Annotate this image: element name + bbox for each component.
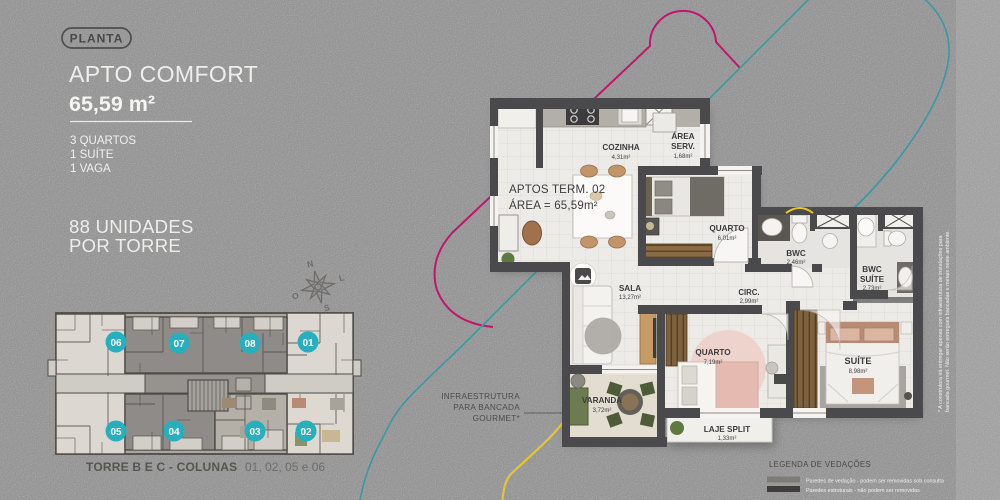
svg-text:bancada gourmet. Não serão ent: bancada gourmet. Não serão entregues ban… [945, 230, 951, 412]
svg-text:TORRE B E C - COLUNAS: TORRE B E C - COLUNAS [86, 460, 237, 474]
svg-text:BWC: BWC [862, 265, 882, 274]
svg-text:PLANTA: PLANTA [70, 32, 124, 46]
svg-text:13,27m²: 13,27m² [619, 295, 641, 301]
svg-text:Paredes de vedação - podem ser: Paredes de vedação - podem ser removidas… [806, 479, 944, 485]
svg-text:* A construtora irá entregar a: * A construtora irá entregar apenas com … [938, 236, 944, 413]
svg-text:6,01m²: 6,01m² [718, 236, 737, 242]
svg-text:03: 03 [249, 427, 261, 438]
svg-text:06: 06 [110, 338, 122, 349]
svg-text:88 UNIDADES: 88 UNIDADES [69, 216, 194, 237]
svg-text:8,98m²: 8,98m² [849, 369, 868, 375]
svg-text:SUÍTE: SUÍTE [844, 355, 871, 366]
svg-text:ÁREA: ÁREA [671, 131, 694, 141]
svg-text:65,59 m²: 65,59 m² [69, 92, 155, 116]
svg-text:LEGENDA DE VEDAÇÕES: LEGENDA DE VEDAÇÕES [769, 460, 871, 469]
svg-text:SERV.: SERV. [671, 142, 695, 151]
svg-text:SALA: SALA [619, 284, 641, 293]
svg-text:3 QUARTOS: 3 QUARTOS [70, 135, 136, 147]
svg-text:LAJE SPLIT: LAJE SPLIT [704, 425, 750, 434]
svg-text:1 SUÍTE: 1 SUÍTE [70, 148, 114, 161]
svg-text:PARA BANCADA: PARA BANCADA [453, 403, 520, 412]
svg-text:GOURMET*: GOURMET* [473, 414, 521, 423]
svg-text:INFRAESTRUTURA: INFRAESTRUTURA [441, 392, 520, 401]
svg-text:2,99m²: 2,99m² [740, 299, 759, 305]
svg-text:POR TORRE: POR TORRE [69, 235, 181, 256]
svg-text:SUÍTE: SUÍTE [860, 274, 885, 284]
svg-text:04: 04 [168, 427, 180, 438]
svg-text:1,68m²: 1,68m² [674, 154, 693, 160]
svg-text:COZINHA: COZINHA [602, 143, 639, 152]
svg-text:02: 02 [300, 427, 312, 438]
svg-text:ÁREA = 65,59m²: ÁREA = 65,59m² [509, 199, 598, 212]
svg-text:07: 07 [173, 339, 185, 350]
svg-text:7,19m²: 7,19m² [704, 360, 723, 366]
svg-text:APTO COMFORT: APTO COMFORT [69, 61, 258, 87]
svg-text:05: 05 [110, 427, 122, 438]
svg-text:1,33m²: 1,33m² [718, 436, 737, 442]
svg-text:2,73m²: 2,73m² [863, 286, 882, 292]
svg-text:1 VAGA: 1 VAGA [70, 163, 111, 175]
svg-text:08: 08 [244, 339, 256, 350]
svg-text:CIRC.: CIRC. [738, 288, 759, 297]
svg-text:4,31m²: 4,31m² [612, 155, 631, 161]
svg-text:Paredes estruturais - não pode: Paredes estruturais - não podem ser remo… [806, 488, 920, 494]
svg-text:QUARTO: QUARTO [695, 348, 731, 357]
svg-text:01, 02, 05 e 06: 01, 02, 05 e 06 [245, 460, 325, 474]
svg-text:01: 01 [302, 338, 314, 349]
svg-text:3,72m²: 3,72m² [593, 408, 612, 414]
svg-text:APTOS TERM. 02: APTOS TERM. 02 [509, 184, 605, 196]
svg-text:VARANDA: VARANDA [582, 396, 622, 405]
svg-text:2,46m²: 2,46m² [787, 260, 806, 266]
svg-text:BWC: BWC [786, 249, 806, 258]
svg-text:QUARTO: QUARTO [709, 224, 745, 233]
